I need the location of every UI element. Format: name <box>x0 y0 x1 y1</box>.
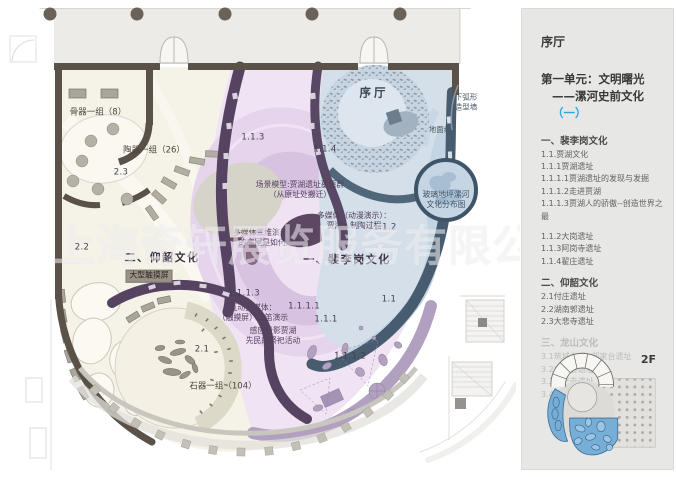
floor-label: 2F <box>641 353 656 366</box>
section-heading: 一、裴李岗文化 <box>541 135 665 149</box>
outline-section: 一、裴李岗文化1.1.贾湖文化1.1.1贾湖遗址1.1.1.1贾湖遗址的发现与发… <box>541 135 665 269</box>
page: { "sidebar": { "hall_label": "序厅", "unit… <box>0 0 676 477</box>
sidebar-hall-title: 序厅 <box>541 33 665 50</box>
unit-title-prefix: ——漯河史前文化 <box>552 89 644 103</box>
floor-plan-drawing <box>0 0 516 477</box>
corridor <box>44 8 461 65</box>
outline-item: 2.2湖南郭遗址 <box>541 304 665 316</box>
lobby-circle <box>321 65 429 173</box>
outline-item: 1.1.1.1贾湖遗址的发现与发掘 <box>541 173 665 185</box>
outline-item: 1.1.3阿岗寺遗址 <box>541 243 665 255</box>
outline-item: 1.1.1.2走进贾湖 <box>541 186 665 198</box>
outline-item: 1.1.2大岗遗址 <box>541 231 665 243</box>
outline-section: 二、仰韶文化2.1付庄遗址2.2湖南郭遗址2.3大悲寺遗址 <box>541 277 665 328</box>
unit-title-highlight: （一） <box>552 106 587 120</box>
outline-item: 1.1.4翟庄遗址 <box>541 256 665 268</box>
minimap: 2F <box>538 345 666 465</box>
outline-item <box>541 223 665 231</box>
outline-item: 1.1.1贾湖遗址 <box>541 161 665 173</box>
minimap-atrium <box>568 383 597 412</box>
unit-title-line1: 第一单元：文明曙光 <box>541 71 665 88</box>
stairs <box>449 296 505 440</box>
sidebar-panel: 序厅 第一单元：文明曙光 ——漯河史前文化（一） 一、裴李岗文化1.1.贾湖文化… <box>521 8 674 470</box>
outline-item: 2.1付庄遗址 <box>541 291 665 303</box>
outline-item: 2.3大悲寺遗址 <box>541 316 665 328</box>
glass-floor-map <box>416 160 476 220</box>
outline-item: 1.1.1.3贾湖人的骄傲--创造世界之最 <box>541 198 665 223</box>
outline-item: 1.1.贾湖文化 <box>541 149 665 161</box>
section-heading: 二、仰韶文化 <box>541 277 665 291</box>
unit-title-line2: ——漯河史前文化（一） <box>552 88 665 121</box>
